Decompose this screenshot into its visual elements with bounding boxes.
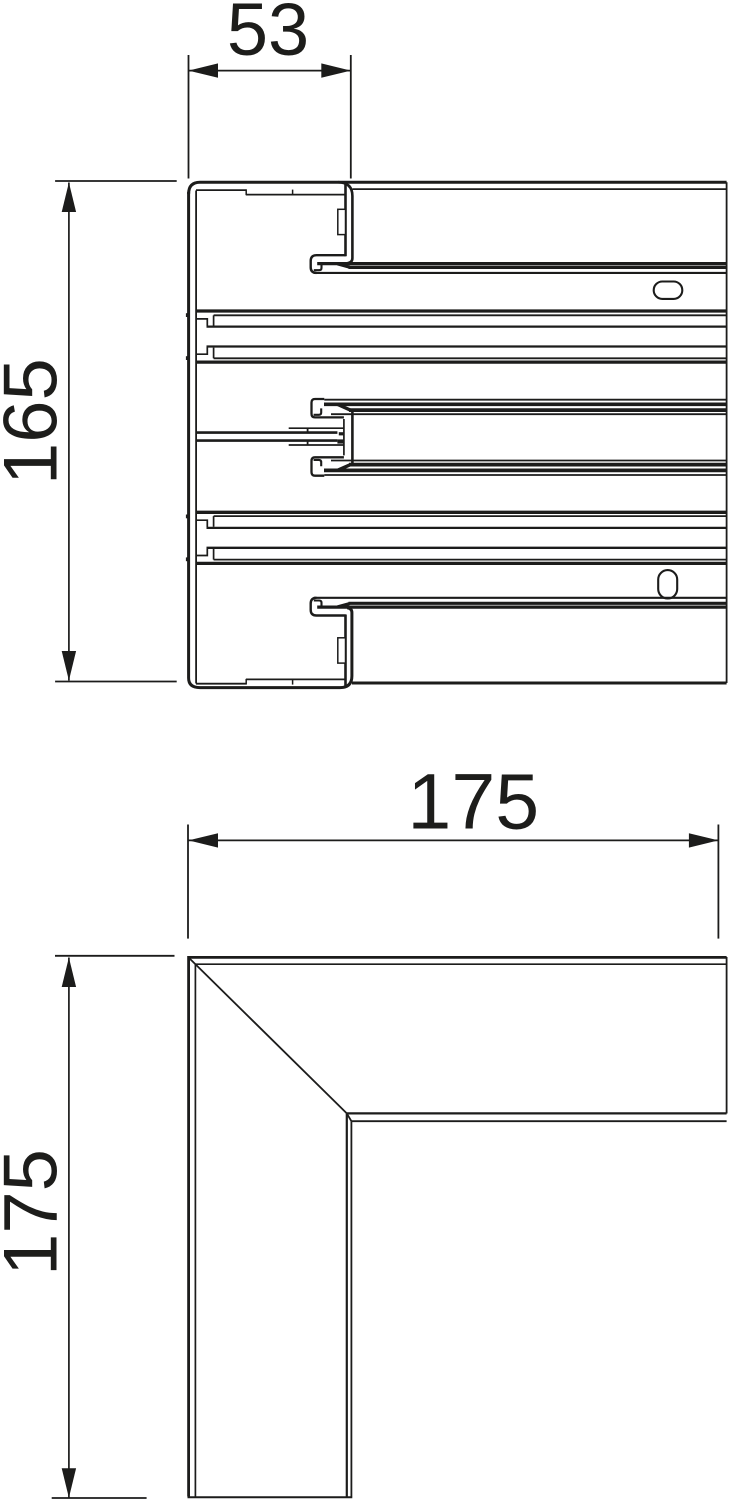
svg-text:165: 165 [0, 358, 74, 485]
svg-text:175: 175 [0, 1149, 74, 1276]
svg-text:175: 175 [407, 756, 539, 845]
svg-text:53: 53 [227, 0, 309, 71]
